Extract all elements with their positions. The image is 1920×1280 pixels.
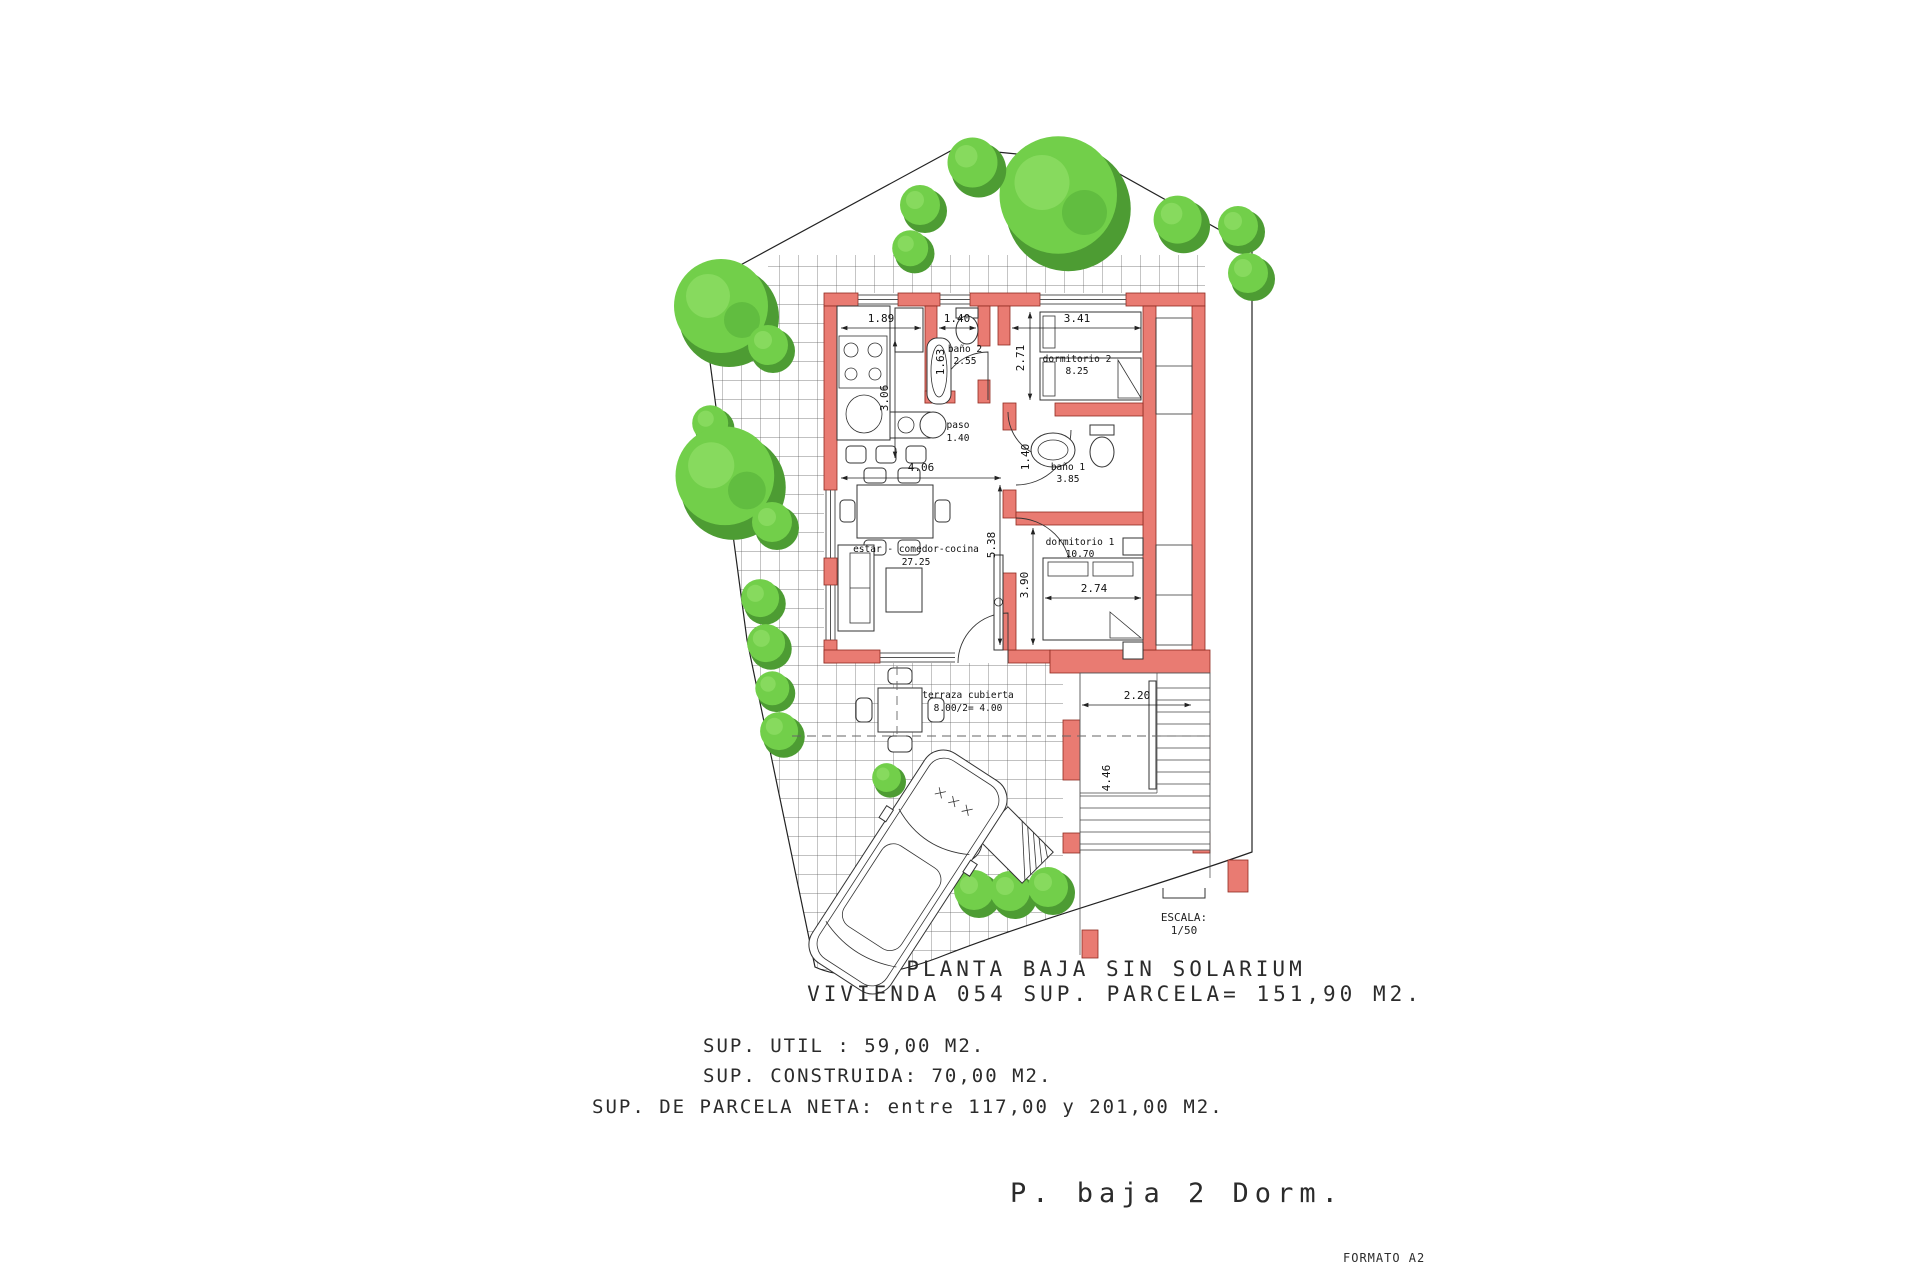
room-label-bano2: baño 2: [948, 344, 982, 355]
window-kitchen: [858, 295, 898, 304]
coffee-table: [886, 568, 922, 612]
tree-icon: [1228, 253, 1275, 301]
sup-util: SUP. UTIL : 59,00 M2.: [703, 1035, 985, 1057]
window-living-2: [826, 585, 835, 640]
stool: [876, 446, 896, 463]
dim-living-width: 4.06: [908, 461, 935, 474]
scale-label: ESCALA:: [1161, 911, 1207, 924]
room-label-dorm2: dormitorio 2: [1043, 354, 1112, 365]
format-label: FORMATO A2: [1343, 1251, 1425, 1265]
room-area-bano1: 3.85: [1057, 474, 1080, 485]
room-area-dorm2: 8.25: [1066, 366, 1089, 377]
tree-icon: [948, 138, 1007, 198]
room-label-terraza: terraza cubierta: [922, 690, 1014, 701]
sliding-door-terrace: [880, 653, 955, 662]
dim-kitchen-depth: 3.06: [878, 385, 891, 412]
room-area-dorm1: 10.70: [1066, 549, 1095, 560]
scale-block: ESCALA: 1/50: [1161, 888, 1207, 937]
room-label-bano1: baño 1: [1051, 462, 1086, 473]
sup-parcela-neta: SUP. DE PARCELA NETA: entre 117,00 y 201…: [592, 1096, 1224, 1118]
sup-construida: SUP. CONSTRUIDA: 70,00 M2.: [703, 1065, 1052, 1087]
room-label-dorm1: dormitorio 1: [1046, 537, 1115, 548]
dim-kitchen-width: 1.89: [868, 312, 895, 325]
stool: [846, 446, 866, 463]
sofa: [838, 545, 874, 631]
room-label-estar: estar - comedor-cocina: [853, 544, 979, 555]
dim-dorm2-width: 3.41: [1064, 312, 1091, 325]
room-area-paso: 1.40: [947, 433, 970, 444]
room-area-terraza: 8.00/2= 4.00: [934, 703, 1003, 714]
plan-title: PLANTA BAJA SIN SOLARIUM: [906, 957, 1305, 981]
plan-subtitle: VIVIENDA 054 SUP. PARCELA= 151,90 M2.: [807, 982, 1423, 1006]
scale-value: 1/50: [1171, 924, 1198, 937]
dim-stairs-width: 2.20: [1124, 689, 1151, 702]
floor-plan-sheet: 1.89 1.40 3.41 3.06 1.63 2.71 4.06 5.38 …: [0, 0, 1920, 1280]
window-dorm2: [1040, 295, 1126, 304]
room-area-bano2: 2.55: [954, 356, 977, 367]
dim-bano1-depth: 1.40: [1019, 444, 1032, 471]
dim-stairs-depth: 4.46: [1100, 765, 1113, 792]
dim-dorm2-depth: 2.71: [1014, 345, 1027, 372]
room-label-paso: paso: [947, 420, 970, 431]
tv-board: [994, 555, 1003, 650]
tree-icon: [1000, 136, 1131, 271]
floor-plan-svg: 1.89 1.40 3.41 3.06 1.63 2.71 4.06 5.38 …: [0, 0, 1920, 1280]
tree-icon: [1154, 196, 1210, 254]
window-living-1: [826, 490, 835, 558]
tree-icon: [900, 185, 947, 233]
sheet-footer: P. baja 2 Dorm.: [1010, 1178, 1344, 1209]
dining-set: [840, 468, 950, 555]
dim-living-depth: 5.38: [985, 532, 998, 559]
captions: PLANTA BAJA SIN SOLARIUM VIVIENDA 054 SU…: [592, 957, 1425, 1265]
room-area-estar: 27.25: [902, 557, 931, 568]
dim-bed1-width: 2.74: [1081, 582, 1108, 595]
dim-bano2-width: 1.40: [944, 312, 971, 325]
dim-bano2-depth: 1.63: [934, 349, 947, 376]
bano1-fixtures: [1031, 425, 1114, 467]
dim-dorm1-depth: 3.90: [1018, 572, 1031, 599]
window-bano2: [940, 295, 970, 304]
tree-icon: [1218, 206, 1265, 254]
